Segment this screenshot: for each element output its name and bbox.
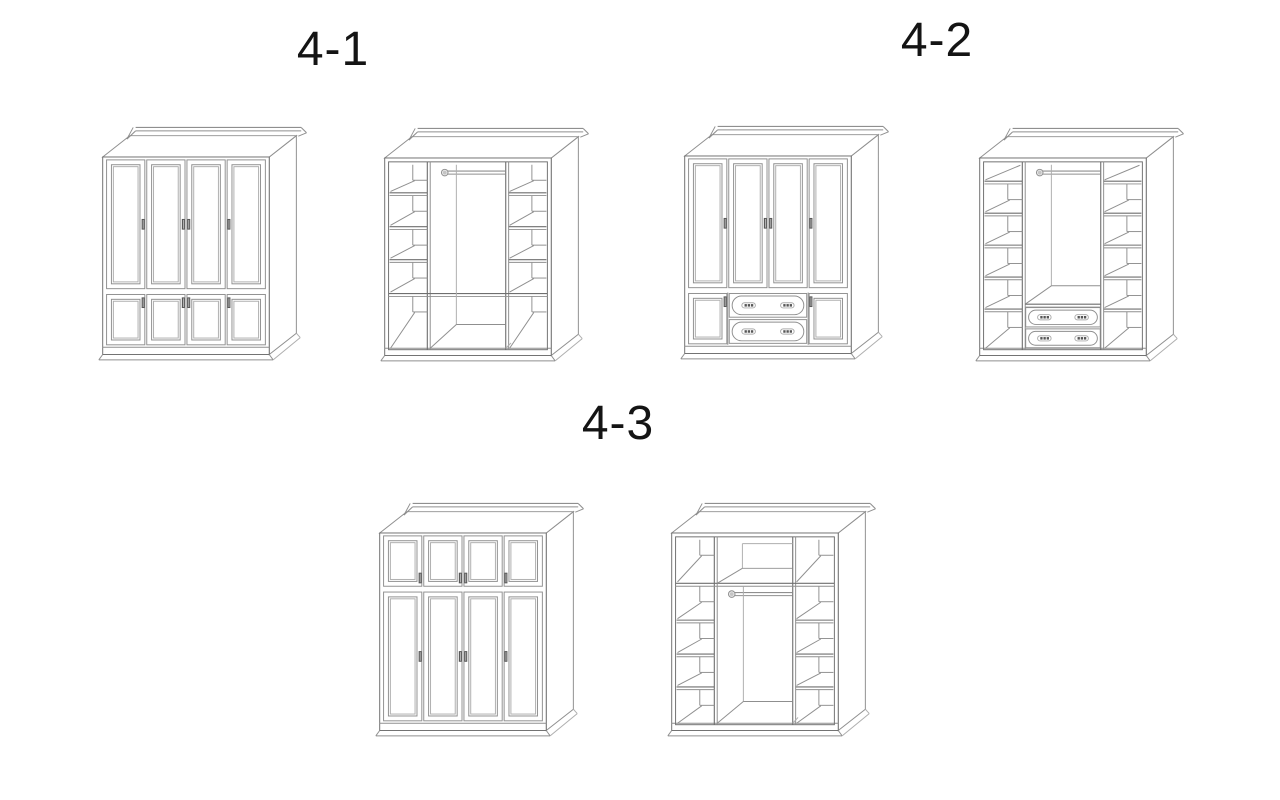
door-handle bbox=[724, 296, 727, 307]
door-handle bbox=[459, 573, 462, 584]
door-handle bbox=[809, 296, 812, 307]
cabinet-shell bbox=[381, 128, 589, 360]
figure-4-3-interior-drawing bbox=[662, 502, 877, 746]
wardrobe-4-1-front-view bbox=[93, 126, 308, 370]
door-handle bbox=[809, 218, 812, 229]
door-handle bbox=[724, 218, 727, 229]
figure-4-1-front-drawing bbox=[93, 126, 308, 370]
door-handle bbox=[227, 219, 230, 230]
door-handle bbox=[464, 573, 467, 584]
door-handle bbox=[769, 218, 772, 229]
door-handle bbox=[182, 219, 185, 230]
diagram-canvas: 4-1 4-2 4-3 bbox=[0, 0, 1280, 800]
figure-4-1-interior-drawing bbox=[375, 127, 590, 371]
door-handle bbox=[504, 573, 507, 584]
wardrobe-4-3-front-view bbox=[370, 502, 585, 746]
door-handle bbox=[459, 651, 462, 662]
wardrobe-4-2-front-view bbox=[675, 125, 890, 369]
door-handle bbox=[464, 651, 467, 662]
door-handle bbox=[227, 297, 230, 308]
door-handle bbox=[182, 297, 185, 308]
cabinet-shell bbox=[99, 127, 307, 359]
wardrobe-4-3-interior-view bbox=[662, 502, 877, 746]
cabinet-shell bbox=[681, 126, 889, 358]
wardrobe-4-1-interior-view bbox=[375, 127, 590, 371]
door-handle bbox=[419, 573, 422, 584]
figure-label-4-2: 4-2 bbox=[901, 17, 973, 65]
cabinet-shell bbox=[376, 503, 584, 735]
door-handle bbox=[419, 651, 422, 662]
door-handle bbox=[187, 297, 190, 308]
figure-4-3-front-drawing bbox=[370, 502, 585, 746]
wardrobe-4-2-interior-view bbox=[970, 127, 1185, 371]
figure-4-2-interior-drawing bbox=[970, 127, 1185, 371]
door-handle bbox=[142, 297, 145, 308]
door-handle bbox=[764, 218, 767, 229]
figure-label-4-1: 4-1 bbox=[297, 26, 369, 74]
door-handle bbox=[504, 651, 507, 662]
figure-label-4-3: 4-3 bbox=[582, 400, 654, 448]
figure-4-2-front-drawing bbox=[675, 125, 890, 369]
door-handle bbox=[187, 219, 190, 230]
door-handle bbox=[142, 219, 145, 230]
